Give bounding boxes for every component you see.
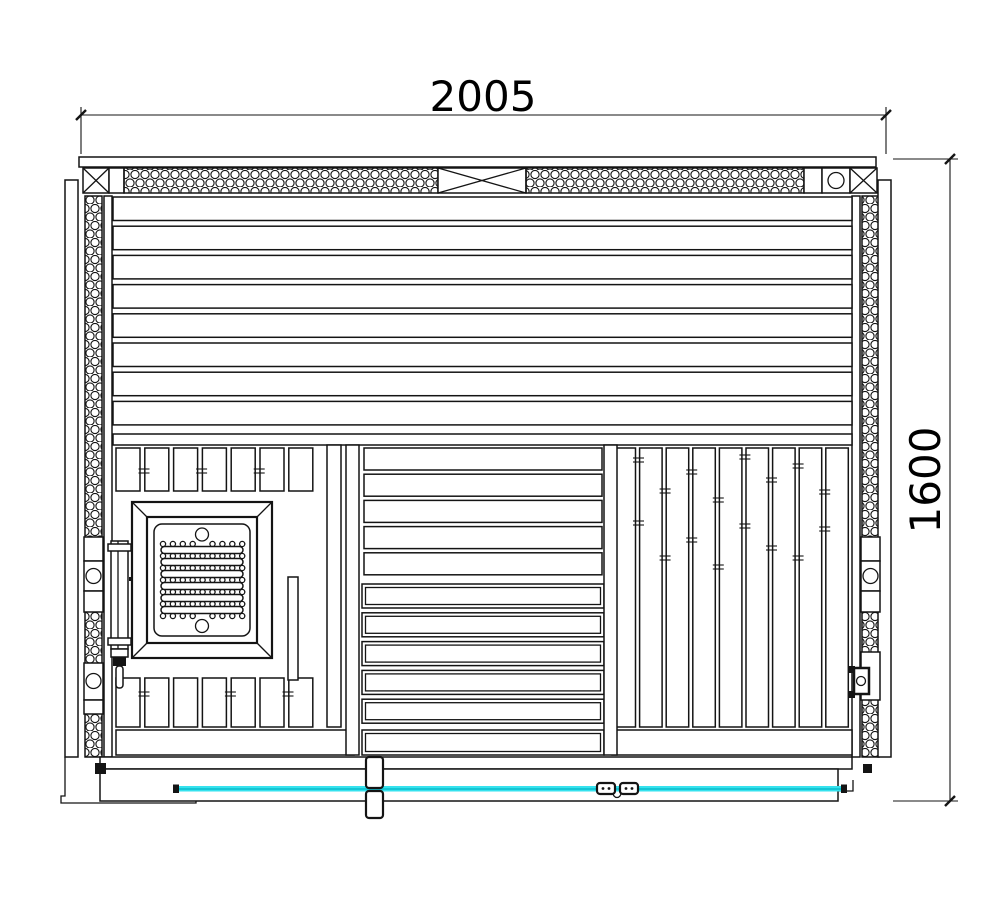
heating-bar bbox=[161, 559, 243, 566]
sauna-technical-drawing: 2005 1600 bbox=[0, 0, 1000, 900]
roof-insulation-left bbox=[124, 168, 438, 193]
wall-plank bbox=[113, 285, 852, 309]
roof-assembly bbox=[79, 157, 877, 193]
left-plinth bbox=[116, 730, 354, 755]
backrest-plank bbox=[364, 474, 602, 496]
wall-slat bbox=[693, 448, 716, 727]
section-divider-left bbox=[346, 445, 359, 755]
wall-plank bbox=[113, 197, 852, 221]
wall-slat bbox=[799, 448, 822, 727]
guard-slat bbox=[260, 678, 284, 727]
foot-block-left bbox=[95, 763, 106, 774]
backrest-plank bbox=[364, 527, 602, 549]
middle-rail bbox=[113, 434, 852, 445]
drain-spout bbox=[116, 666, 123, 688]
base-rail-lower bbox=[100, 769, 838, 801]
drain-valve bbox=[113, 657, 126, 666]
bench-middle bbox=[362, 448, 604, 755]
guard-slat bbox=[202, 678, 226, 727]
wall-slat bbox=[640, 448, 663, 727]
floor-base bbox=[61, 757, 872, 818]
right-wall bbox=[849, 180, 891, 757]
foot-block-right bbox=[863, 764, 872, 773]
wall-plank bbox=[113, 343, 852, 367]
wall-slat bbox=[719, 448, 742, 727]
guard-slat bbox=[289, 678, 313, 727]
heating-bar bbox=[161, 595, 243, 602]
backrest-slats bbox=[364, 448, 602, 575]
guard-slat bbox=[289, 448, 313, 491]
height-dimension-label: 1600 bbox=[901, 427, 950, 534]
support-clamp bbox=[366, 757, 383, 818]
left-wall-inner-board bbox=[104, 196, 112, 757]
bench-right bbox=[612, 448, 852, 755]
dimension-width: 2005 bbox=[76, 72, 891, 154]
wall-plank bbox=[113, 372, 852, 396]
wall-plank bbox=[113, 226, 852, 250]
guard-slat bbox=[116, 448, 140, 491]
pipe-body bbox=[111, 541, 128, 649]
heating-bar bbox=[161, 607, 243, 614]
backrest-plank bbox=[364, 500, 602, 522]
corner-post bbox=[327, 445, 341, 727]
wall-plank bbox=[113, 255, 852, 279]
left-wall-outer-board bbox=[65, 180, 78, 757]
heater-guard-slats-top bbox=[116, 448, 313, 491]
sauna-heater bbox=[132, 502, 272, 658]
right-plinth bbox=[612, 730, 852, 755]
wall-slat bbox=[666, 448, 689, 727]
wall-plank bbox=[113, 401, 852, 425]
roof-cap-board bbox=[79, 157, 876, 167]
backrest-plank bbox=[364, 448, 602, 470]
heating-bar bbox=[161, 583, 243, 590]
wall-plank bbox=[113, 314, 852, 338]
base-rail-upper bbox=[100, 757, 852, 769]
guard-slat bbox=[145, 678, 169, 727]
wall-slat bbox=[773, 448, 796, 727]
guard-slat bbox=[174, 678, 198, 727]
guard-slat bbox=[231, 448, 255, 491]
heating-bar bbox=[161, 571, 243, 578]
heater-guard-slats-bottom bbox=[116, 678, 313, 727]
roof-insulation-right bbox=[526, 168, 804, 193]
section-divider-right bbox=[604, 445, 617, 755]
left-wall bbox=[65, 180, 112, 757]
dimension-height: 1600 bbox=[893, 154, 958, 806]
wall-slat bbox=[746, 448, 769, 727]
guard-slat bbox=[174, 448, 198, 491]
guard-slat bbox=[231, 678, 255, 727]
width-dimension-label: 2005 bbox=[430, 72, 537, 121]
heating-bar bbox=[161, 547, 243, 554]
right-wall-slats bbox=[613, 448, 848, 727]
upper-wall-cladding bbox=[113, 197, 852, 425]
bench-front-panels bbox=[362, 584, 604, 755]
backrest-plank bbox=[364, 553, 602, 575]
support-board bbox=[288, 577, 298, 680]
